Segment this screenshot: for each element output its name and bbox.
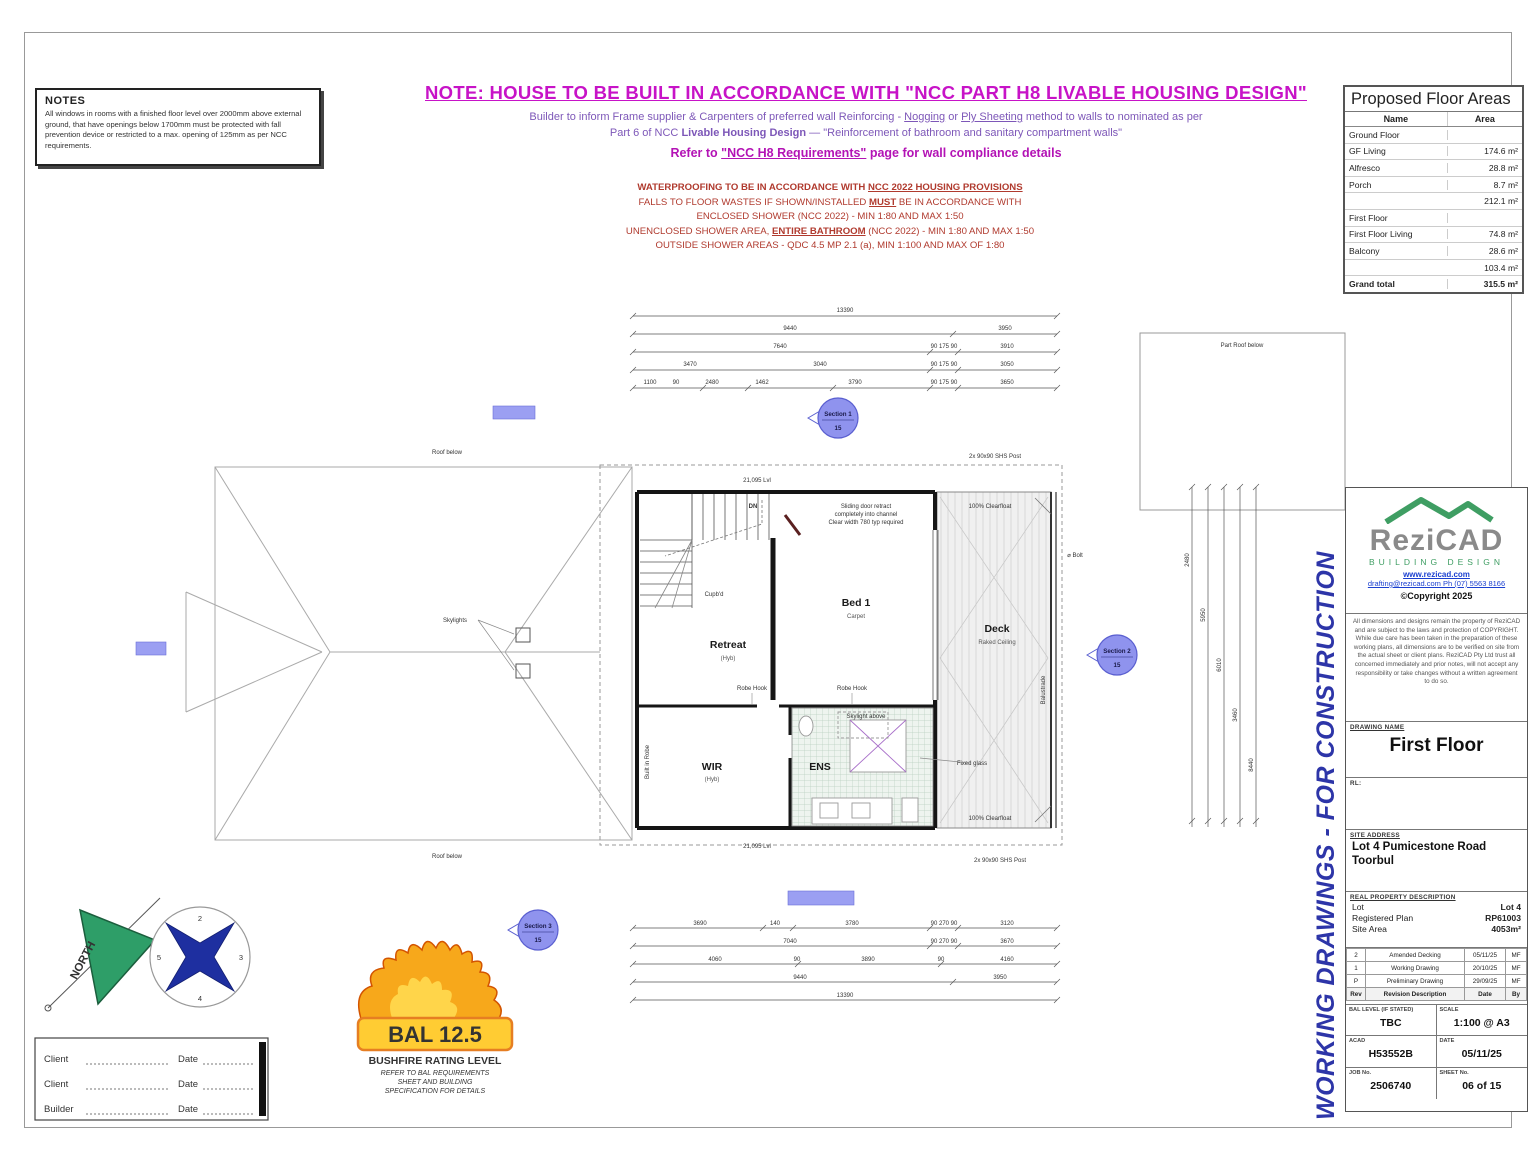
post-bottom-label: 2x 90x90 SHS Post (974, 858, 1026, 864)
svg-text:Sliding door retract: Sliding door retract (841, 504, 892, 510)
header-line3-pre: Part 6 of NCC (610, 127, 682, 139)
header-lhd: Livable Housing Design (681, 127, 806, 139)
roof-below-bottom-label: Roof below (432, 854, 463, 860)
svg-text:3950: 3950 (993, 975, 1007, 981)
wir-sub: (Hyb) (705, 777, 720, 783)
top-dimension-values: 13390 9440 3950 7640 90 175 90 3910 3470… (644, 308, 1015, 386)
bed1-label: Bed 1 (842, 597, 871, 609)
page-title: First Floor (1346, 735, 1527, 757)
rl-section: RL: (1346, 778, 1527, 830)
wp-line1: WATERPROOFING TO BE IN ACCORDANCE WITH N… (560, 181, 1100, 196)
table-row: 103.4 m² (1345, 260, 1522, 277)
sign-date2-label: Date (178, 1079, 198, 1090)
table-row: Alfresco28.8 m² (1345, 160, 1522, 177)
svg-text:15: 15 (835, 425, 842, 432)
table-row: Porch8.7 m² (1345, 177, 1522, 194)
header-ncc-h8-link: "NCC H8 Requirements" (721, 146, 866, 160)
svg-text:90 270 90: 90 270 90 (931, 939, 958, 945)
table-row: Ground Floor (1345, 127, 1522, 144)
lvl-top-label: 21,095 Lvl (743, 478, 771, 484)
header-or: or (945, 111, 961, 123)
svg-text:3460: 3460 (1233, 708, 1239, 722)
svg-text:6010: 6010 (1217, 658, 1223, 672)
title-block: ReziCAD BUILDING DESIGN www.rezicad.com … (1345, 487, 1528, 1112)
retreat-label: Retreat (710, 639, 747, 651)
bal-sub2: SHEET AND BUILDING (398, 1079, 473, 1086)
north-arrow: NORTH (45, 898, 160, 1011)
sliding-door-note: Sliding door retract completely into cha… (828, 504, 903, 526)
right-dimensions (1189, 484, 1259, 827)
header-notes: NOTE: HOUSE TO BE BUILT IN ACCORDANCE WI… (400, 82, 1332, 160)
header-line3-end: — "Reinforcement of bathroom and sanitar… (806, 127, 1122, 139)
copyright-text: ©Copyright 2025 (1346, 591, 1527, 601)
notes-box: NOTES All windows in rooms with a finish… (35, 88, 321, 166)
sign-builder-label: Builder (44, 1104, 74, 1115)
compass-w: 5 (157, 953, 161, 962)
drawing-name-label: DRAWING NAME (1346, 722, 1527, 731)
stair (640, 494, 800, 608)
col-name: Name (1345, 112, 1448, 126)
rezicad-roof-icon (1346, 494, 1527, 524)
svg-text:3470: 3470 (683, 362, 697, 368)
sign-date1-label: Date (178, 1054, 198, 1065)
svg-text:Robe Hook: Robe Hook (737, 686, 768, 692)
wp-line2-text: FALLS TO FLOOR WASTES IF SHOWN/INSTALLED (639, 197, 869, 208)
wp-line5: OUTSIDE SHOWER AREAS - QDC 4.5 MP 2.1 (a… (560, 239, 1100, 254)
header-nogging: Nogging (904, 111, 945, 123)
scale-cell: SCALE1:100 @ A3 (1437, 1005, 1528, 1036)
revision-row: PPreliminary Drawing29/09/25MF (1347, 975, 1527, 988)
built-in-robe-label: Built in Robe (645, 744, 651, 779)
roof-below-outline (186, 467, 632, 840)
drawing-name-section: DRAWING NAME First Floor (1346, 722, 1527, 778)
wir-label: WIR (702, 761, 723, 773)
sign-date3-label: Date (178, 1104, 198, 1115)
site-address-label: SITE ADDRESS (1346, 830, 1527, 839)
svg-text:9440: 9440 (783, 326, 797, 332)
rezicad-logo: ReziCAD BUILDING DESIGN www.rezicad.com … (1346, 488, 1527, 614)
svg-text:Clear width 780 typ required: Clear width 780 typ required (828, 520, 903, 526)
wp-ncc-provisions: NCC 2022 HOUSING PROVISIONS (868, 182, 1023, 193)
svg-text:90 175 90: 90 175 90 (931, 380, 958, 386)
bottom-dimension-values: 3690 140 3780 90 270 90 3120 7040 90 270… (693, 921, 1014, 999)
ens-label: ENS (809, 761, 831, 773)
svg-text:90: 90 (794, 957, 801, 963)
header-line4: Refer to "NCC H8 Requirements" page for … (400, 146, 1332, 160)
balustrade-label: Balustrade (1041, 675, 1047, 704)
revision-row: 1Working Drawing20/10/25MF (1347, 962, 1527, 975)
svg-text:90 175 90: 90 175 90 (931, 362, 958, 368)
clearfloat-bottom-label: 100% Clearfloat (969, 816, 1012, 822)
svg-text:7040: 7040 (783, 939, 797, 945)
header-line2-text: Builder to inform Frame supplier & Carpe… (529, 111, 904, 123)
svg-text:Section 1: Section 1 (824, 411, 852, 418)
title-block-grid: BAL LEVEL (IF STATED)TBC SCALE1:100 @ A3… (1346, 1005, 1527, 1099)
svg-text:Part Roof below: Part Roof below (1221, 343, 1264, 349)
svg-text:4160: 4160 (1000, 957, 1014, 963)
clearfloat-top-label: 100% Clearfloat (969, 504, 1012, 510)
part-roof-below: Part Roof below (1140, 333, 1345, 510)
svg-text:3950: 3950 (998, 326, 1012, 332)
header-line3: Part 6 of NCC Livable Housing Design — "… (400, 127, 1332, 139)
svg-text:9440: 9440 (793, 975, 807, 981)
floor-plan-canvas: Roof below Roof below Skylights Part Roo… (0, 0, 1534, 1149)
site-address-line1: Lot 4 Pumicestone Road (1346, 841, 1527, 853)
waterproofing-notes: WATERPROOFING TO BE IN ACCORDANCE WITH N… (560, 181, 1100, 254)
bed1-sub: Carpet (847, 614, 865, 620)
svg-text:90 270 90: 90 270 90 (931, 921, 958, 927)
svg-text:15: 15 (535, 937, 542, 944)
retreat-sub: (Hyb) (721, 656, 736, 662)
revision-row: 2Amended Decking05/11/25MF (1347, 949, 1527, 962)
svg-text:Section 2: Section 2 (1103, 648, 1131, 655)
svg-text:3670: 3670 (1000, 939, 1014, 945)
rezicad-name: ReziCAD (1346, 526, 1527, 556)
table-row: Balcony28.6 m² (1345, 243, 1522, 260)
svg-text:8440: 8440 (1249, 758, 1255, 772)
elevation-compass: 2 3 4 5 (150, 907, 250, 1007)
header-line2: Builder to inform Frame supplier & Carpe… (400, 111, 1332, 123)
signature-box: Client Date Client Date Builder Date (35, 1038, 268, 1120)
wp-line4-text: UNENCLOSED SHOWER AREA, (626, 226, 772, 237)
floor-areas-table: Proposed Floor Areas Name Area Ground Fl… (1343, 85, 1524, 294)
working-drawings-banner: WORKING DRAWINGS - FOR CONSTRUCTION (1309, 600, 1343, 1120)
robe-hook-notes: Robe Hook Robe Hook (737, 686, 868, 704)
sign-client1-label: Client (44, 1054, 69, 1065)
header-line4-end: page for wall compliance details (866, 146, 1061, 160)
wp-line4-end: (NCC 2022) - MIN 1:80 AND MAX 1:50 (866, 226, 1034, 237)
svg-text:13390: 13390 (837, 308, 854, 314)
sheet-number-cell: SHEET No.06 of 15 (1437, 1068, 1528, 1099)
site-address-line2: Toorbul (1346, 855, 1527, 867)
bal-level-cell: BAL LEVEL (IF STATED)TBC (1346, 1005, 1437, 1036)
table-row: Grand total315.5 m² (1345, 276, 1522, 292)
svg-text:2480: 2480 (1185, 553, 1191, 567)
svg-text:3120: 3120 (1000, 921, 1014, 927)
col-area: Area (1448, 112, 1522, 126)
rl-label: RL: (1346, 778, 1527, 787)
svg-text:140: 140 (770, 921, 781, 927)
rezicad-tagline: BUILDING DESIGN (1346, 557, 1527, 567)
deck-sub-label: Raked Ceiling (978, 640, 1015, 646)
svg-text:3690: 3690 (693, 921, 707, 927)
rpd-plan-row: Registered PlanRP61003 (1346, 912, 1527, 923)
section-marker-3: Section 3 15 (508, 910, 558, 950)
drawing-sheet: Roof below Roof below Skylights Part Roo… (0, 0, 1534, 1149)
section-marker-1: Section 1 15 (808, 398, 858, 438)
rezicad-email-link[interactable]: drafting@rezicad.com Ph (07) 5563 8166 (1346, 579, 1527, 588)
svg-text:3790: 3790 (848, 380, 862, 386)
rpd-lot-row: LotLot 4 (1346, 901, 1527, 912)
rpd-area-row: Site Area4053m² (1346, 923, 1527, 934)
compass-s: 4 (198, 994, 202, 1003)
bal-title: BUSHFIRE RATING LEVEL (369, 1055, 502, 1067)
site-address-section: SITE ADDRESS Lot 4 Pumicestone Road Toor… (1346, 830, 1527, 892)
header-line2-end: method to walls to nominated as per (1023, 111, 1203, 123)
notes-body: All windows in rooms with a finished flo… (45, 109, 311, 151)
date-cell: DATE05/11/25 (1437, 1036, 1528, 1067)
sign-client2-label: Client (44, 1079, 69, 1090)
top-dimensions (630, 313, 1060, 391)
deck-area (937, 492, 1056, 828)
header-title: NOTE: HOUSE TO BE BUILT IN ACCORDANCE WI… (400, 82, 1332, 104)
lvl-bottom-label: 21,095 Lvl (743, 844, 771, 850)
rpd-label: REAL PROPERTY DESCRIPTION (1346, 892, 1527, 901)
bolt-label: ⌀ Bolt (1067, 553, 1083, 559)
header-refer: Refer to (670, 146, 721, 160)
table-row: First Floor (1345, 210, 1522, 227)
svg-text:1100: 1100 (644, 380, 658, 386)
svg-text:90: 90 (938, 957, 945, 963)
notes-title: NOTES (45, 95, 311, 107)
section-marker-2: Section 2 15 (1087, 635, 1137, 675)
svg-text:3780: 3780 (845, 921, 859, 927)
svg-text:3040: 3040 (813, 362, 827, 368)
roof-below-top-label: Roof below (432, 450, 463, 456)
svg-text:2480: 2480 (705, 380, 719, 386)
deck-label: Deck (984, 623, 1009, 635)
table-row: GF Living174.6 m² (1345, 144, 1522, 161)
floor-areas-title: Proposed Floor Areas (1345, 87, 1522, 112)
bal-sub3: SPECIFICATION FOR DETAILS (385, 1088, 486, 1095)
cupboard-label: Cupb'd (705, 592, 724, 598)
property-description-section: REAL PROPERTY DESCRIPTION LotLot 4 Regis… (1346, 892, 1527, 948)
bal-sub1: REFER TO BAL REQUIREMENTS (381, 1070, 490, 1077)
rezicad-website-link[interactable]: www.rezicad.com (1346, 570, 1527, 579)
svg-text:13390: 13390 (837, 993, 854, 999)
floor-areas-header: Name Area (1345, 112, 1522, 127)
svg-text:7640: 7640 (773, 344, 787, 350)
svg-text:3890: 3890 (861, 957, 875, 963)
svg-text:4060: 4060 (708, 957, 722, 963)
wp-must: MUST (869, 197, 896, 208)
svg-text:Section 3: Section 3 (524, 923, 552, 930)
right-dimension-values: 2480 5950 6010 3460 8440 (1185, 553, 1255, 772)
header-ply-sheeting: Ply Sheeting (961, 111, 1023, 123)
stair-dn-label: DN (749, 504, 758, 510)
wp-line2: FALLS TO FLOOR WASTES IF SHOWN/INSTALLED… (560, 196, 1100, 211)
table-row: 212.1 m² (1345, 193, 1522, 210)
disclaimer-text: All dimensions and designs remain the pr… (1346, 614, 1527, 722)
bottom-dimensions (630, 925, 1060, 1003)
wp-line4: UNENCLOSED SHOWER AREA, ENTIRE BATHROOM … (560, 225, 1100, 240)
svg-text:3050: 3050 (1000, 362, 1014, 368)
svg-text:completely into channel: completely into channel (835, 512, 898, 518)
wp-line2-end: BE IN ACCORDANCE WITH (896, 197, 1021, 208)
svg-text:15: 15 (1114, 662, 1121, 669)
revision-header-row: RevRevision DescriptionDateBy (1347, 988, 1527, 1001)
svg-text:Skylights: Skylights (443, 618, 467, 624)
svg-text:90: 90 (673, 380, 680, 386)
table-row: First Floor Living74.8 m² (1345, 227, 1522, 244)
compass-n: 2 (198, 914, 202, 923)
wp-line3: ENCLOSED SHOWER (NCC 2022) - MIN 1:80 AN… (560, 210, 1100, 225)
acad-cell: ACADH53552B (1346, 1036, 1437, 1067)
bal-badge-text: BAL 12.5 (388, 1022, 482, 1047)
svg-text:Robe Hook: Robe Hook (837, 686, 868, 692)
skylight-above-label: Skylight above (846, 714, 886, 720)
svg-text:3910: 3910 (1000, 344, 1014, 350)
bal-rating-badge: BAL 12.5 BUSHFIRE RATING LEVEL REFER TO … (358, 941, 512, 1095)
svg-text:1462: 1462 (755, 380, 769, 386)
wp-entire-bathroom: ENTIRE BATHROOM (772, 226, 866, 237)
post-top-label: 2x 90x90 SHS Post (969, 454, 1021, 460)
svg-text:3650: 3650 (1000, 380, 1014, 386)
job-number-cell: JOB No.2506740 (1346, 1068, 1437, 1099)
compass-e: 3 (239, 953, 243, 962)
revision-table: 2Amended Decking05/11/25MF 1Working Draw… (1346, 948, 1527, 1005)
wp-line1-text: WATERPROOFING TO BE IN ACCORDANCE WITH (637, 182, 868, 193)
svg-text:90 175 90: 90 175 90 (931, 344, 958, 350)
skylights-callout: Skylights (443, 618, 514, 670)
svg-text:5950: 5950 (1201, 608, 1207, 622)
